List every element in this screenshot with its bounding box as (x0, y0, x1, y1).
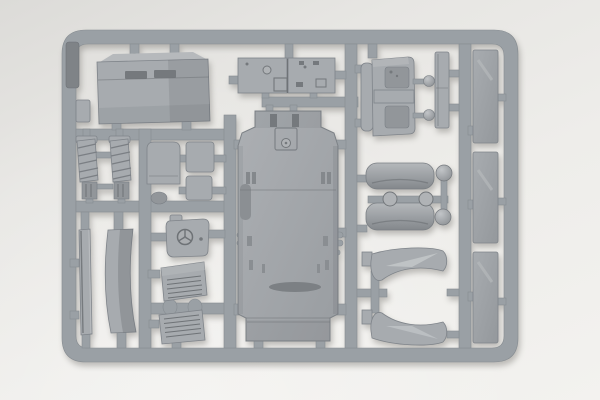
part-floor-panel-left (238, 58, 287, 93)
corner-tab (66, 42, 79, 88)
small-plate (76, 100, 90, 122)
part-fender-top (362, 248, 447, 281)
part-narrow-strip (435, 52, 449, 128)
model-kit-sprue-photo (0, 0, 600, 400)
sprue-parts-group (62, 30, 518, 362)
part-running-board (105, 229, 136, 333)
part-step-plates (473, 50, 498, 343)
part-leaf-springs (76, 136, 131, 199)
part-chassis (238, 111, 338, 341)
part-bench-seat-assembly (361, 57, 435, 136)
part-seat-back (147, 142, 180, 184)
part-floor-panel-right (288, 58, 336, 93)
part-radiator-grille (166, 215, 209, 257)
sprue-drawing (0, 0, 600, 400)
part-bumper-strip (79, 229, 92, 335)
part-cargo-box (97, 52, 210, 124)
part-fender-bottom (362, 310, 447, 345)
